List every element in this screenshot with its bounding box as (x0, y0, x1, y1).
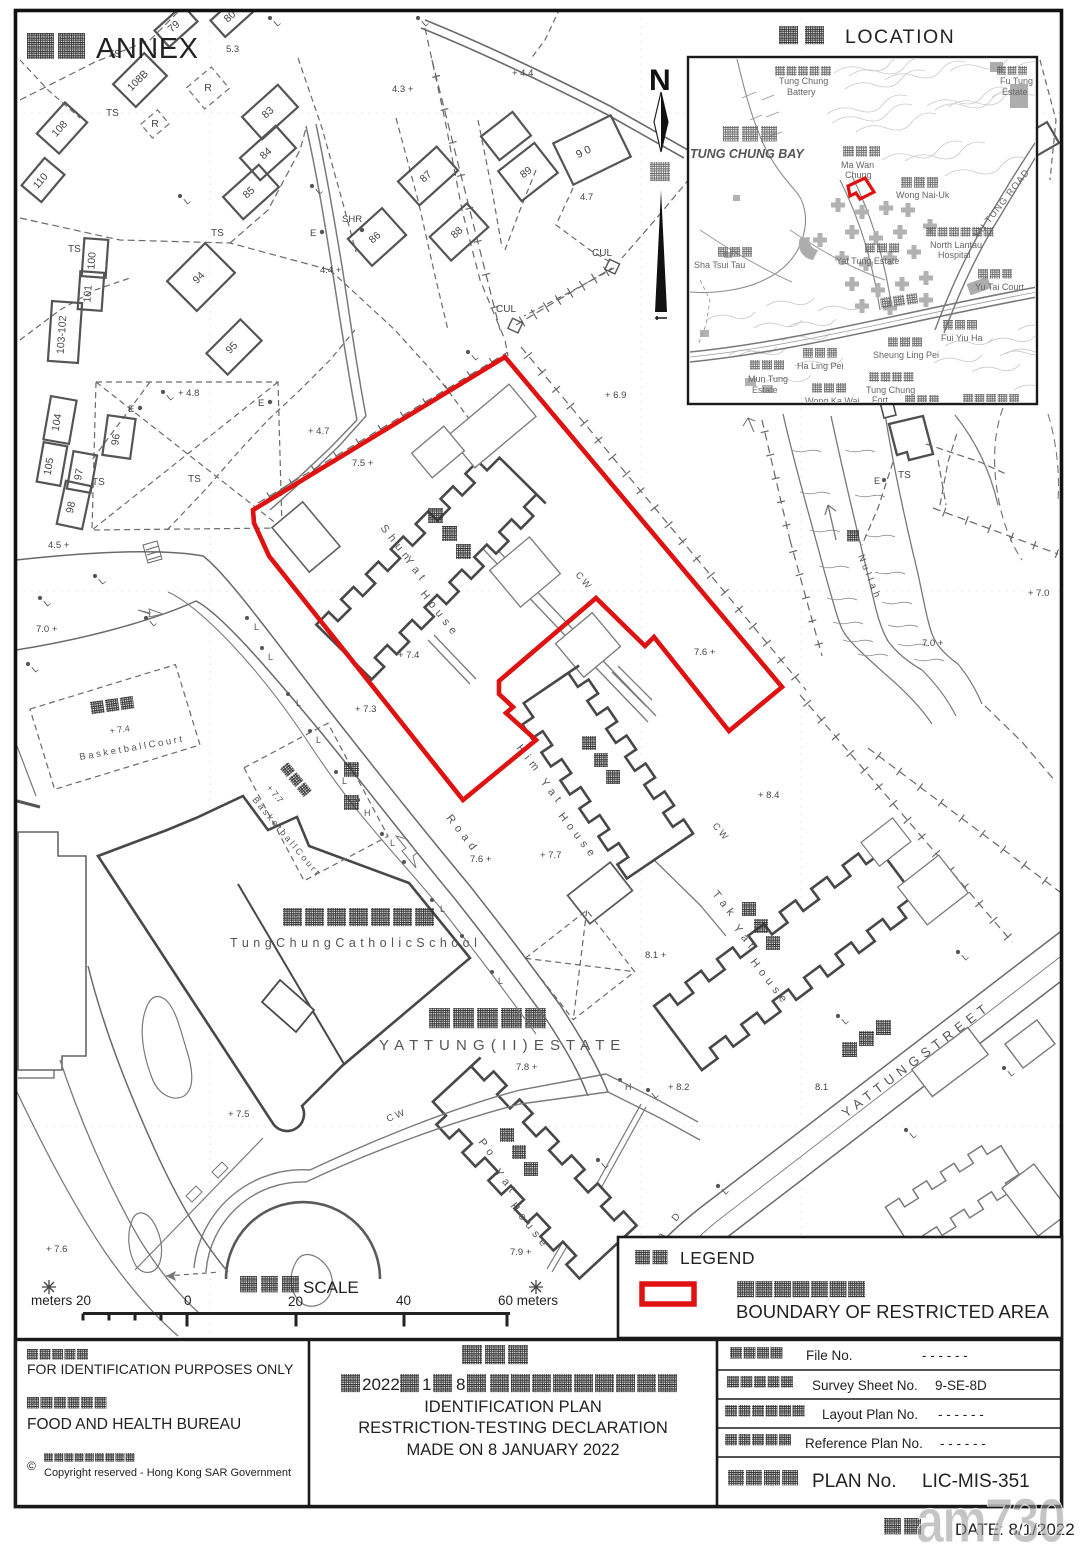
svg-text:E: E (310, 228, 316, 239)
svg-text:20: 20 (288, 1294, 303, 1309)
svg-text:7.6 +: 7.6 + (470, 854, 492, 865)
svg-text:7.5 +: 7.5 + (352, 458, 374, 469)
svg-text:4.4 +: 4.4 + (320, 265, 342, 276)
svg-text:TS: TS (898, 470, 911, 481)
svg-text:4.7: 4.7 (580, 192, 593, 203)
svg-text:100: 100 (85, 251, 98, 269)
svg-text:Hospital: Hospital (938, 250, 971, 260)
svg-text:60 meters: 60 meters (498, 1293, 558, 1308)
svg-text:40: 40 (396, 1293, 411, 1308)
svg-text:- - - - - -: - - - - - - (938, 1407, 984, 1422)
svg-text:L: L (296, 698, 301, 708)
svg-text:IDENTIFICATION PLAN: IDENTIFICATION PLAN (424, 1398, 602, 1416)
svg-text:+ 7.6: + 7.6 (46, 1244, 67, 1255)
svg-text:meters 20: meters 20 (31, 1293, 91, 1308)
svg-text:North Lantau: North Lantau (930, 240, 982, 250)
svg-text:4.5 +: 4.5 + (48, 540, 70, 551)
svg-text:H: H (364, 808, 371, 818)
svg-text:am730: am730 (916, 1487, 1064, 1556)
svg-text:Mun Tung: Mun Tung (748, 374, 788, 384)
svg-text:8.1: 8.1 (815, 1082, 828, 1093)
svg-text:+ 6.9: + 6.9 (605, 390, 626, 401)
svg-text:+ 4.8: + 4.8 (178, 388, 199, 399)
svg-text:TS: TS (92, 477, 105, 488)
svg-text:+ 7.4: + 7.4 (398, 650, 419, 661)
svg-text:TUNG CHUNG BAY: TUNG CHUNG BAY (690, 147, 805, 161)
svg-text:2022: 2022 (362, 1375, 400, 1394)
svg-text:Yat Tung Estate: Yat Tung Estate (836, 256, 899, 266)
svg-text:R: R (151, 118, 159, 130)
svg-text:Reference Plan No.: Reference Plan No. (805, 1436, 923, 1451)
svg-text:Ma Wan: Ma Wan (841, 160, 874, 170)
svg-text:L: L (440, 904, 445, 914)
svg-text:+ 4.4: + 4.4 (512, 68, 533, 79)
svg-text:+ 7.0: + 7.0 (1028, 588, 1049, 599)
svg-text:8.1 +: 8.1 + (645, 950, 667, 961)
svg-text:CUL: CUL (496, 304, 516, 315)
svg-text:E: E (128, 404, 134, 415)
svg-text:97: 97 (72, 468, 86, 482)
svg-text:7.6 +: 7.6 + (694, 647, 716, 658)
svg-text:Copyright reserved - Hong Kong: Copyright reserved - Hong Kong SAR Gover… (44, 1467, 291, 1479)
svg-text:L: L (268, 652, 273, 662)
svg-text:T u n g C h u n g C a t h: T u n g C h u n g C a t h o l i c S c h … (230, 936, 477, 950)
svg-text:TS: TS (68, 244, 81, 255)
svg-text:L: L (390, 838, 395, 848)
svg-text:4.3 +: 4.3 + (392, 84, 414, 95)
svg-text:L: L (498, 976, 503, 986)
svg-text:LEGEND: LEGEND (680, 1248, 755, 1268)
svg-text:Sha Tsui Tau: Sha Tsui Tau (694, 260, 745, 270)
svg-text:SCALE: SCALE (303, 1278, 359, 1297)
svg-text:E: E (258, 398, 264, 409)
svg-text:Tung Chung: Tung Chung (866, 385, 915, 395)
svg-text:TS: TS (188, 474, 201, 485)
svg-text:Wong Nai-Uk: Wong Nai-Uk (896, 190, 950, 200)
svg-text:MADE ON 8 JANUARY 2022: MADE ON 8 JANUARY 2022 (406, 1441, 619, 1459)
svg-text:+ 7.5: + 7.5 (228, 1109, 249, 1120)
svg-text:Fu Tung: Fu Tung (1000, 76, 1033, 86)
svg-text:©: © (27, 1459, 36, 1473)
svg-text:R: R (204, 82, 212, 94)
svg-text:E: E (874, 476, 880, 486)
svg-text:RESTRICTION-TESTING DECLARATIO: RESTRICTION-TESTING DECLARATION (358, 1419, 668, 1437)
svg-text:9-SE-8D: 9-SE-8D (935, 1378, 987, 1393)
svg-text:L: L (316, 735, 321, 745)
svg-text:- - - - - -: - - - - - - (940, 1436, 986, 1451)
svg-text:Ha Ling Pei: Ha Ling Pei (797, 361, 844, 371)
svg-text:5.3: 5.3 (226, 44, 239, 55)
svg-text:File No.: File No. (806, 1348, 853, 1363)
svg-text:Estate: Estate (752, 385, 778, 395)
svg-text:N: N (649, 64, 671, 97)
svg-text:L: L (254, 622, 259, 632)
svg-text:ANNEX: ANNEX (96, 33, 198, 65)
svg-text:Sheung Ling Pei: Sheung Ling Pei (873, 350, 939, 360)
svg-text:Fui Yiu Ha: Fui Yiu Ha (941, 333, 983, 343)
svg-text:7.0 +: 7.0 + (922, 638, 944, 649)
svg-text:96: 96 (109, 433, 123, 446)
svg-text:7.9 +: 7.9 + (510, 1247, 532, 1258)
svg-text:7.8 +: 7.8 + (516, 1062, 538, 1073)
svg-text:Estate: Estate (1002, 87, 1028, 97)
svg-text:7.0 +: 7.0 + (36, 624, 58, 635)
svg-text:- - - - - -: - - - - - - (922, 1348, 968, 1363)
svg-text:Layout Plan No.: Layout Plan No. (822, 1407, 918, 1422)
svg-text:101: 101 (81, 284, 94, 302)
svg-text:Tung Chung: Tung Chung (779, 76, 828, 86)
svg-text:+ 7.7: + 7.7 (540, 850, 561, 861)
svg-text:Battery: Battery (787, 87, 816, 97)
svg-text:+ 4.7: + 4.7 (308, 426, 329, 437)
svg-text:Survey Sheet No.: Survey Sheet No. (812, 1378, 918, 1393)
svg-text:SHR: SHR (342, 214, 362, 225)
svg-text:0: 0 (184, 1293, 192, 1308)
svg-text:FOOD AND HEALTH BUREAU: FOOD AND HEALTH BUREAU (27, 1416, 241, 1433)
svg-text:+ 8.2: + 8.2 (668, 1082, 689, 1093)
svg-text:PLAN No.: PLAN No. (812, 1471, 896, 1492)
svg-text:TS: TS (106, 108, 119, 119)
svg-text:Yu Tai Court: Yu Tai Court (975, 282, 1024, 292)
svg-text:8: 8 (456, 1375, 465, 1394)
svg-text:CUL: CUL (592, 248, 612, 259)
svg-text:BOUNDARY OF RESTRICTED AREA: BOUNDARY OF RESTRICTED AREA (736, 1301, 1050, 1322)
svg-text:Chung: Chung (845, 170, 872, 180)
svg-text:1: 1 (422, 1375, 431, 1394)
svg-text:+ 7.3: + 7.3 (355, 704, 376, 715)
svg-text:TS: TS (211, 228, 224, 239)
svg-text:LOCATION: LOCATION (845, 26, 955, 48)
svg-text:FOR IDENTIFICATION PURPOSES ON: FOR IDENTIFICATION PURPOSES ONLY (27, 1361, 294, 1377)
svg-text:+ 8.4: + 8.4 (758, 790, 779, 801)
svg-text:L: L (342, 776, 347, 786)
